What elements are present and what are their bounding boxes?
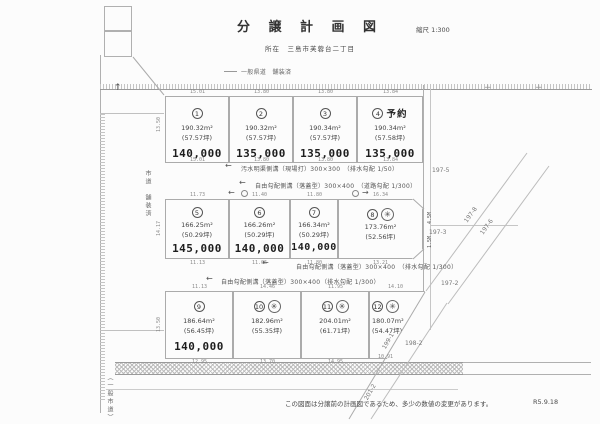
area-value: 204.01m² bbox=[319, 317, 351, 325]
dim-label: 14.10 bbox=[388, 284, 403, 290]
parcel-number: 197-2 bbox=[441, 280, 458, 287]
tsubo-value: (61.71坪) bbox=[320, 325, 350, 335]
dim-label: 13.50 bbox=[156, 117, 162, 132]
lot-number-badge: 3 bbox=[320, 108, 331, 119]
lot-5: 5 166.25m² (50.29坪) 145,000 bbox=[165, 199, 229, 259]
area-value: 190.32m² bbox=[181, 124, 213, 132]
dim-label: 1.5M bbox=[427, 236, 433, 248]
parcel-number: 197-3 bbox=[429, 229, 446, 236]
lot-7: 7 166.34m² (50.29坪) 140,000 bbox=[290, 199, 338, 259]
dim-label: 13.50 bbox=[156, 317, 162, 332]
dim-label: 10.91 bbox=[378, 354, 393, 360]
dim-label: 14.17 bbox=[156, 221, 162, 236]
boundary-tick-line bbox=[100, 330, 164, 331]
parcel-number: 197-6 bbox=[479, 218, 495, 236]
lot-number-badge: 11 bbox=[322, 301, 333, 312]
tsubo-value: (57.58坪) bbox=[375, 132, 405, 142]
manhole-icon bbox=[352, 190, 359, 197]
sold-stamp-icon: ✳ bbox=[386, 300, 399, 313]
dim-label: 16.34 bbox=[373, 192, 388, 198]
dim-label: 13.80 bbox=[254, 157, 269, 163]
bottom-road-edge-line bbox=[463, 374, 591, 375]
lot-number-badge: 1 bbox=[192, 108, 203, 119]
boundary-tick-line bbox=[100, 113, 164, 114]
area-value: 166.25m² bbox=[181, 221, 213, 229]
bottom-road-hatch bbox=[115, 362, 463, 375]
lot-8: 8✳ 173.76m² (52.56坪) bbox=[338, 199, 423, 259]
dim-label: 13.70 bbox=[260, 359, 275, 365]
east-boundary-line bbox=[423, 85, 424, 292]
area-value: 166.26m² bbox=[244, 221, 276, 229]
tsubo-value: (57.57坪) bbox=[182, 132, 212, 142]
lot-number-badge: 4 bbox=[372, 108, 383, 119]
left-road-hatch bbox=[100, 112, 105, 400]
lot-1: 1 190.32m² (57.57坪) 140,000 bbox=[165, 96, 229, 163]
survey-cross-icon: + bbox=[535, 84, 543, 93]
flow-up-arrow-icon: ↑ bbox=[114, 84, 122, 93]
dim-label: 4.5M bbox=[427, 212, 433, 224]
parcel-number: 197-5 bbox=[432, 167, 449, 174]
tsubo-value: (54.47坪) bbox=[372, 325, 402, 335]
area-value: 190.34m² bbox=[374, 124, 406, 132]
price-value: 140,000 bbox=[174, 340, 224, 353]
sold-stamp-icon: ✳ bbox=[381, 208, 394, 221]
tsubo-value: (55.35坪) bbox=[252, 325, 282, 335]
bottom-road-edge-line bbox=[463, 362, 591, 363]
dim-label: 11.13 bbox=[192, 284, 207, 290]
location-label: 所在 三島市芙蓉台二丁目 bbox=[180, 43, 440, 53]
tsubo-value: (50.29坪) bbox=[182, 229, 212, 239]
dim-label: 12.95 bbox=[192, 359, 207, 365]
corner-structure-box bbox=[104, 31, 132, 57]
price-value: 140,000 bbox=[235, 242, 285, 255]
dim-label: 14.95 bbox=[328, 359, 343, 365]
east-parcel-line bbox=[430, 225, 518, 226]
left-road-label: 市道 舗装済 bbox=[143, 170, 152, 218]
flow-arrow-icon: ← bbox=[262, 259, 269, 267]
tsubo-value: (57.57坪) bbox=[246, 132, 276, 142]
lot-12: 12✳ 180.07m² (54.47坪) bbox=[369, 291, 425, 359]
lot-number-badge: 7 bbox=[309, 207, 320, 218]
top-road-hatch bbox=[100, 84, 592, 90]
bottom-road-label: （一般市道） bbox=[105, 374, 114, 422]
dim-label: 13.80 bbox=[318, 89, 333, 95]
parcel-number: 198-2 bbox=[405, 340, 422, 347]
corner-structure-box bbox=[104, 6, 132, 31]
area-value: 166.34m² bbox=[298, 221, 330, 229]
legend-dash bbox=[224, 71, 237, 72]
dim-label: 13.80 bbox=[318, 157, 333, 163]
drain-note: （排水勾配 1/300） bbox=[321, 277, 380, 286]
price-value: 140,000 bbox=[291, 242, 337, 253]
survey-cross-icon: + bbox=[484, 84, 492, 93]
tsubo-value: (50.29坪) bbox=[299, 229, 329, 239]
sold-stamp-icon: ✳ bbox=[336, 300, 349, 313]
east-parallel-line bbox=[430, 88, 431, 330]
dim-label: 11.80 bbox=[307, 192, 322, 198]
manhole-icon bbox=[241, 190, 248, 197]
footer-date: R5.9.18 bbox=[533, 398, 558, 406]
dim-label: 11.40 bbox=[252, 192, 267, 198]
dim-label: 13.80 bbox=[254, 89, 269, 95]
flow-arrow-icon: → bbox=[362, 189, 369, 197]
page-title: 分 譲 計 画 図 bbox=[160, 16, 460, 35]
drain-note: 自由勾配側溝（落蓋型）300×400 （排水勾配 1/300） bbox=[296, 262, 457, 271]
dim-label: 13.84 bbox=[383, 157, 398, 163]
lot-11: 11✳ 204.01m² (61.71坪) bbox=[301, 291, 369, 359]
bottom-secondary-line bbox=[106, 389, 458, 390]
lot-3: 3 190.34m² (57.57坪) 135,000 bbox=[293, 96, 357, 163]
tsubo-value: (57.57坪) bbox=[310, 132, 340, 142]
lot-number-badge: 9 bbox=[194, 301, 205, 312]
area-value: 186.64m² bbox=[183, 317, 215, 325]
area-value: 182.96m² bbox=[251, 317, 283, 325]
area-value: 190.34m² bbox=[309, 124, 341, 132]
lot-number-badge: 2 bbox=[256, 108, 267, 119]
dim-label: 13.84 bbox=[383, 89, 398, 95]
lot-number-badge: 10 bbox=[254, 301, 265, 312]
sold-stamp-icon: ✳ bbox=[268, 300, 281, 313]
drain-note: 自由勾配側溝（落蓋型）300×400 （道路勾配 1/300） bbox=[255, 181, 416, 190]
dim-label: 15.01 bbox=[190, 89, 205, 95]
area-value: 173.76m² bbox=[365, 223, 397, 231]
dim-label: 15.01 bbox=[190, 157, 205, 163]
area-value: 190.32m² bbox=[245, 124, 277, 132]
dim-label: 11.73 bbox=[190, 192, 205, 198]
flow-arrow-icon: ← bbox=[239, 179, 246, 187]
top-road-label: 一般県道 舗装済 bbox=[241, 67, 291, 76]
flow-arrow-icon: ← bbox=[206, 275, 213, 283]
dim-label: 11.13 bbox=[190, 260, 205, 266]
flow-arrow-icon: ← bbox=[228, 189, 235, 197]
lot-9: 9 186.64m² (56.45坪) 140,000 bbox=[165, 291, 233, 359]
flow-arrow-icon: ← bbox=[225, 162, 232, 170]
lot-number-badge: 8 bbox=[367, 209, 378, 220]
reserved-badge: 予約 bbox=[386, 106, 407, 120]
lot-number-badge: 5 bbox=[192, 207, 203, 218]
tsubo-value: (52.56坪) bbox=[365, 231, 395, 241]
lot-4: 4予約 190.34m² (57.58坪) 135,000 bbox=[357, 96, 423, 163]
site-plan: 分 譲 計 画 図 縮尺 1:300 所在 三島市芙蓉台二丁目 一般県道 舗装済… bbox=[0, 0, 600, 424]
parcel-number: 197-8 bbox=[463, 206, 479, 224]
lot-2: 2 190.32m² (57.57坪) 135,000 bbox=[229, 96, 293, 163]
price-value: 145,000 bbox=[172, 242, 222, 255]
scale-label: 縮尺 1:300 bbox=[416, 24, 450, 34]
drain-note: 自由勾配側溝（落蓋型）300×400 bbox=[221, 277, 320, 286]
drain-note: 汚水明渠側溝（現場打）300×300 （排水勾配 1/50） bbox=[241, 164, 398, 173]
tsubo-value: (56.45坪) bbox=[184, 325, 214, 335]
footer-note: この図面は分譲前の計画図であるため、多少の数値の変更があります。 bbox=[285, 398, 492, 408]
lot-6: 6 166.26m² (50.29坪) 140,000 bbox=[229, 199, 290, 259]
lot-number-badge: 12 bbox=[372, 301, 383, 312]
tsubo-value: (50.29坪) bbox=[244, 229, 274, 239]
lot-10: 10✳ 182.96m² (55.35坪) bbox=[233, 291, 301, 359]
area-value: 180.07m² bbox=[372, 317, 404, 325]
lot-number-badge: 6 bbox=[254, 207, 265, 218]
